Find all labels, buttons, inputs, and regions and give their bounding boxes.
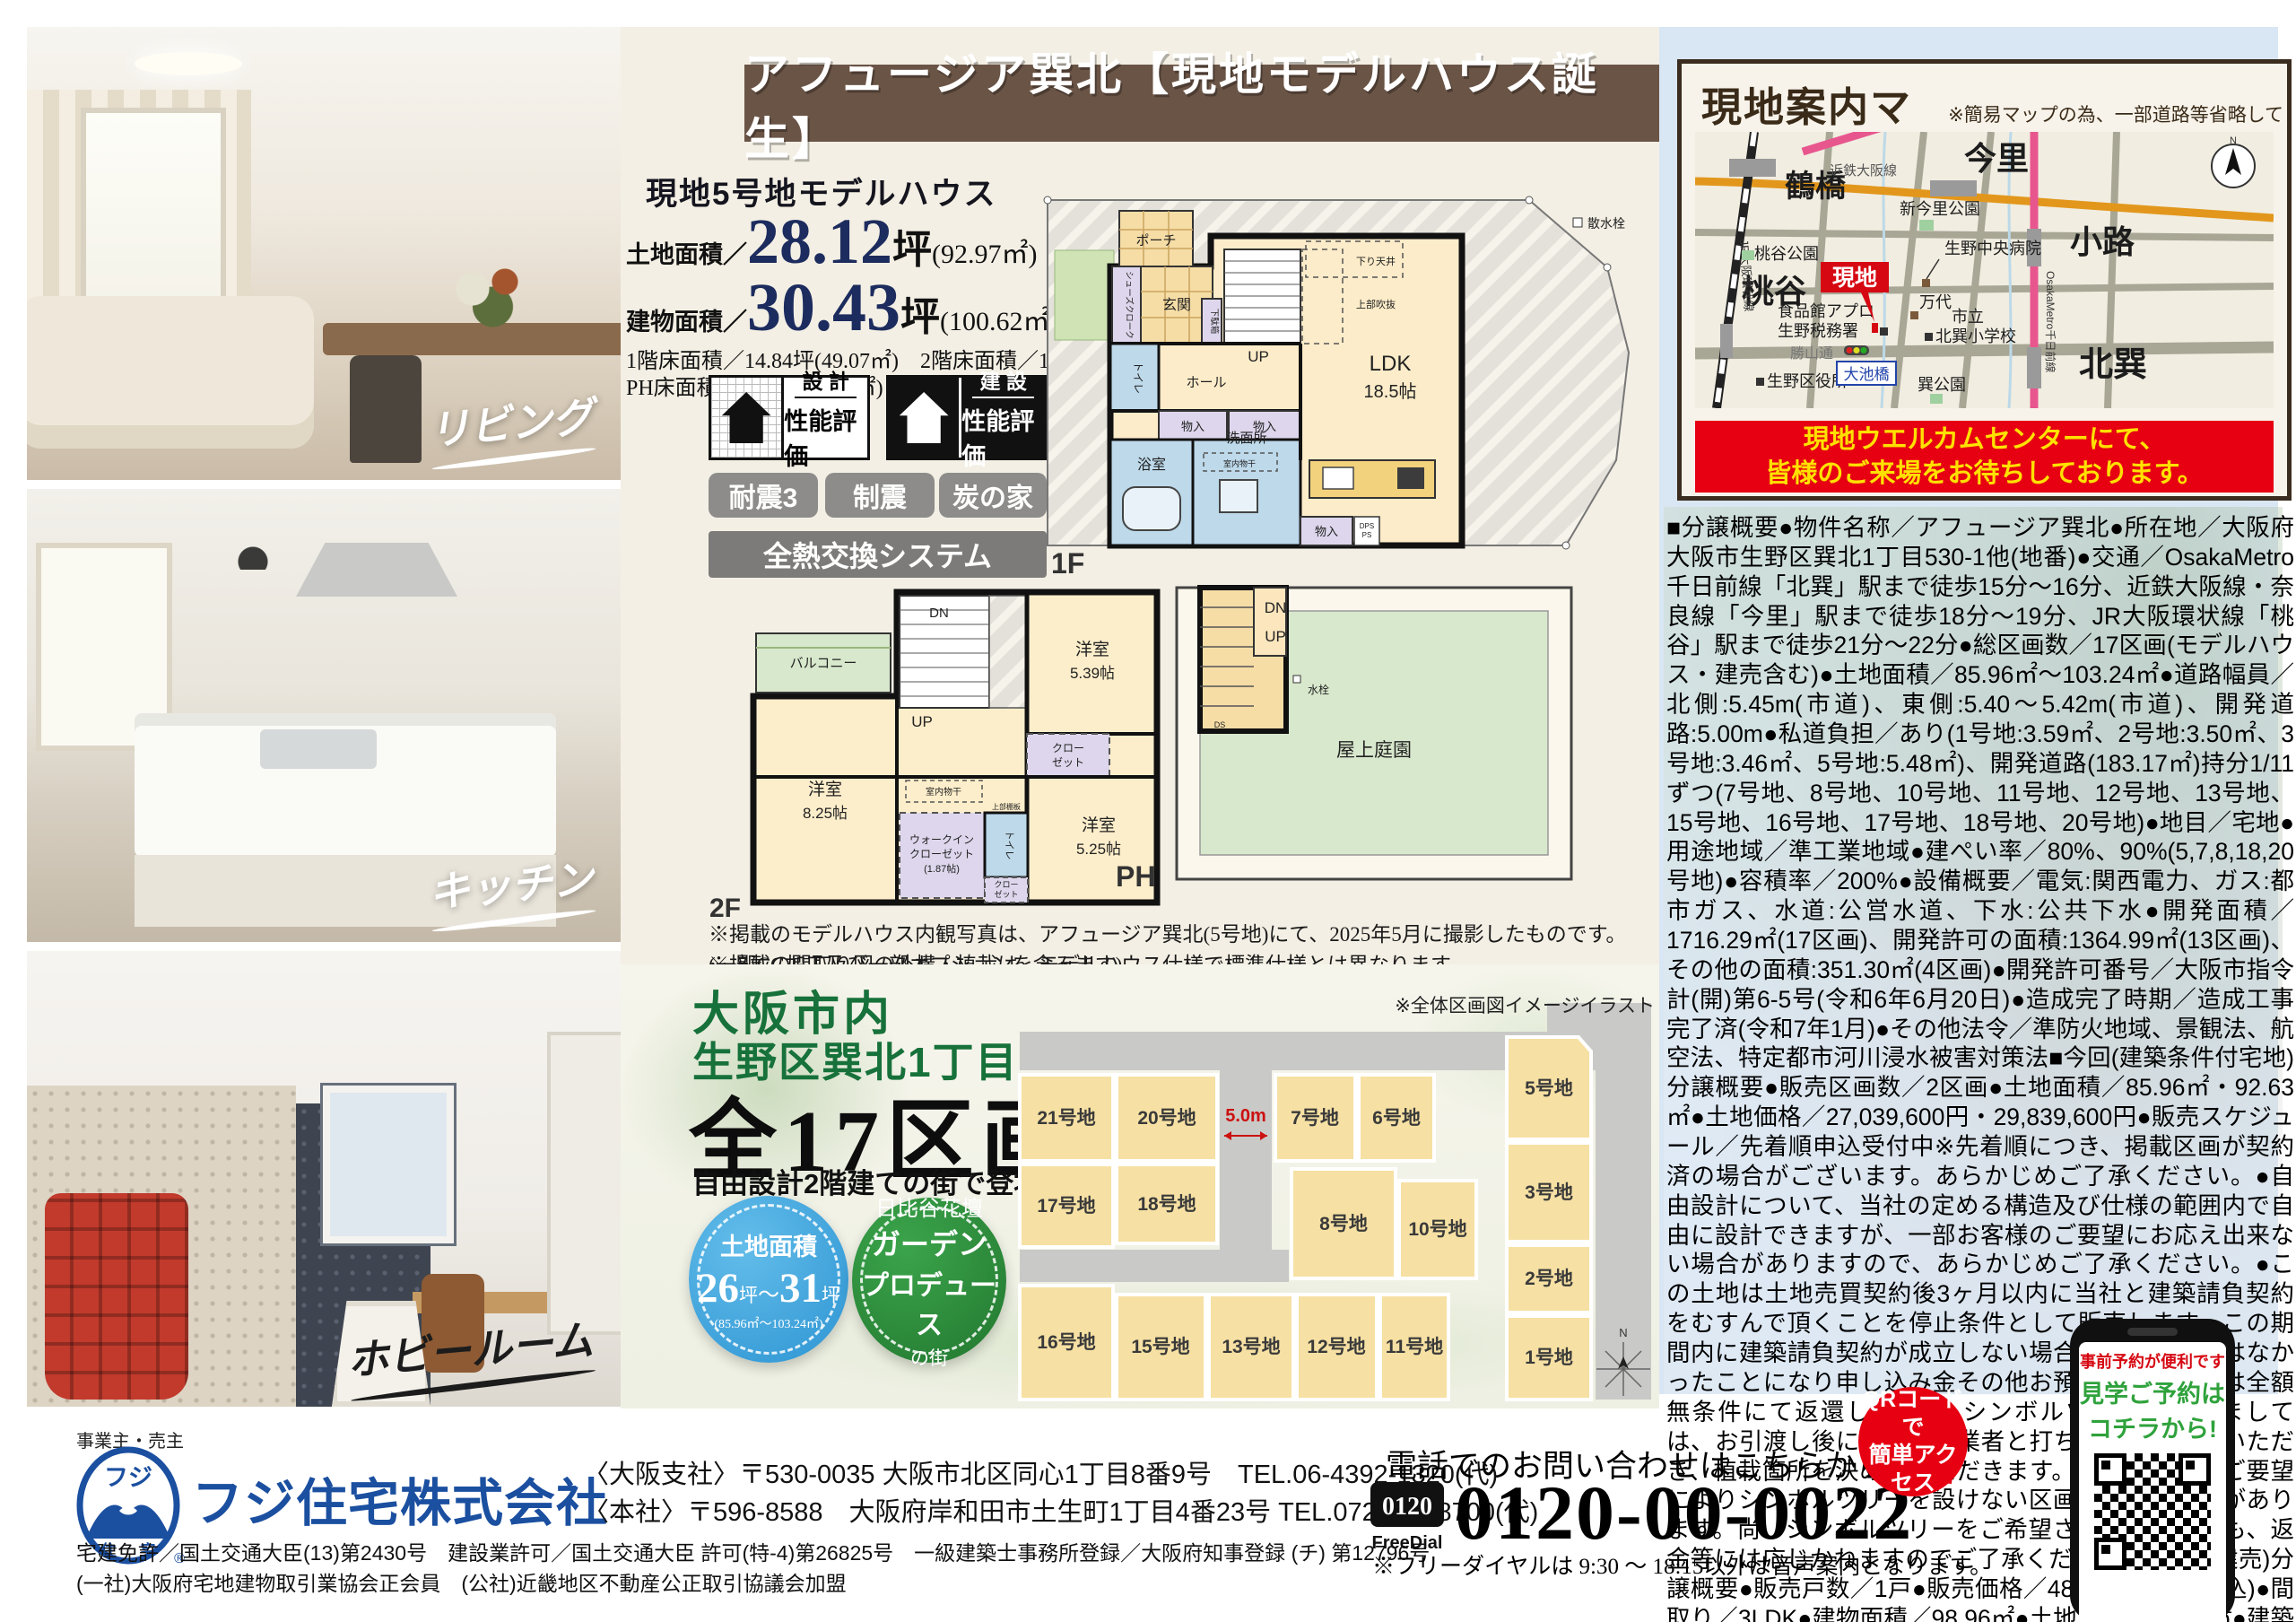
design-performance-badge: 設 計性能評価 — [709, 375, 870, 460]
svg-text:物入: 物入 — [1181, 420, 1205, 433]
svg-text:11号地: 11号地 — [1386, 1336, 1443, 1357]
svg-text:PH: PH — [1116, 860, 1155, 893]
svg-text:ホール: ホール — [1186, 375, 1226, 390]
svg-text:クロー: クロー — [994, 880, 1018, 889]
building-area-row: 建物面積／ 30.43 坪 (100.62㎡) — [626, 269, 1058, 347]
sofa — [27, 296, 314, 449]
svg-text:UP: UP — [1265, 628, 1286, 645]
flyer-page: リビング キッチン ホビールーム アフュージア巽北【現地モデルハウス誕生】 現地… — [0, 0, 2296, 1622]
land-value: 28.12 — [747, 205, 892, 279]
svg-text:北巽: 北巽 — [2079, 346, 2147, 384]
phone-reserve-line2: コチラから! — [2079, 1409, 2226, 1444]
oikebashi-marker: 大池橋 — [1837, 362, 1896, 385]
svg-text:洋室: 洋室 — [1082, 815, 1116, 835]
qr-finder-tl — [2094, 1453, 2126, 1486]
svg-text:1号地: 1号地 — [1525, 1347, 1573, 1368]
land-area-row: 土地面積／ 28.12 坪 (92.97㎡) — [626, 205, 1037, 279]
license-line-1: 宅建免許／国土交通大臣(13)第2430号 建設業許可／国土交通大臣 許可(特-… — [76, 1536, 1430, 1566]
kitchen-caption: キッチン — [426, 846, 596, 931]
svg-text:トイレ: トイレ — [1132, 362, 1144, 394]
house-icon — [900, 392, 949, 443]
building-label: 建物面積／ — [626, 302, 747, 337]
svg-text:万代: 万代 — [1919, 293, 1952, 311]
svg-text:トイレ: トイレ — [1004, 831, 1014, 860]
qr-finder-bl — [2094, 1538, 2126, 1570]
svg-text:0120: 0120 — [1382, 1493, 1432, 1521]
floorplan-1f: ポーチ 玄関 シューズクローク 下駄箱 UP 上部吹抜 下り天井 LDK 18.… — [1040, 164, 1664, 579]
svg-text:フジ: フジ — [104, 1464, 152, 1491]
design-badge-icon — [711, 378, 784, 458]
living-photo: リビング — [27, 27, 621, 480]
road-width-annotation: 5.0m — [1224, 1106, 1267, 1140]
svg-text:12号地: 12号地 — [1307, 1336, 1365, 1357]
seal-ring — [697, 1204, 840, 1355]
svg-text:PS: PS — [1362, 531, 1372, 539]
svg-text:UP: UP — [911, 713, 933, 730]
seishin-button: 制震 — [825, 473, 935, 518]
sink — [260, 729, 377, 769]
svg-text:DPS: DPS — [1360, 522, 1374, 530]
garden-produce-seal: 日比谷花壇 ガーデン プロデュース の街 — [852, 1198, 1006, 1363]
door — [547, 1032, 621, 1335]
svg-text:室内物干: 室内物干 — [926, 786, 961, 798]
ph-plan — [1177, 588, 1571, 879]
svg-text:DN: DN — [929, 606, 949, 621]
company-address-1: 〈大阪支社〉〒530-0035 大阪市北区同心1丁目8番9号 TEL.06-43… — [583, 1453, 1498, 1491]
guide-map-box: 現地案内マップ ※簡易マップの為、一部道路等省略しております。 — [1677, 59, 2292, 501]
svg-text:8号地: 8号地 — [1319, 1213, 1368, 1234]
svg-text:浴室: 浴室 — [1137, 457, 1166, 473]
svg-text:LDK: LDK — [1370, 352, 1412, 376]
guide-map: 鶴橋 今里 小路 桃谷 北巽 近鉄大阪線 JR大阪環状線 OsakaMetro千… — [1695, 132, 2274, 408]
kitchen-photo: キッチン — [27, 489, 621, 942]
svg-text:(1.87帖): (1.87帖) — [924, 863, 960, 875]
svg-text:16号地: 16号地 — [1037, 1331, 1095, 1353]
svg-text:生野中央病院: 生野中央病院 — [1944, 240, 2041, 257]
svg-text:食品館アプロ: 食品館アプロ — [1778, 302, 1874, 320]
svg-text:洋室: 洋室 — [808, 780, 842, 799]
svg-text:2号地: 2号地 — [1525, 1268, 1573, 1289]
land-unit: 坪 — [892, 217, 932, 275]
qr-access-bubble: QRコードで 簡単アクセス — [1858, 1387, 1968, 1496]
red-vest — [45, 1193, 188, 1400]
land-paren: (92.97㎡) — [932, 231, 1037, 271]
svg-text:水栓: 水栓 — [1308, 683, 1329, 696]
svg-text:13号地: 13号地 — [1222, 1336, 1280, 1357]
traffic-signal-icon — [1844, 345, 1869, 355]
svg-text:新今里公園: 新今里公園 — [1900, 200, 1980, 218]
svg-text:玄関: 玄関 — [1162, 297, 1191, 313]
svg-text:クローゼット: クローゼット — [909, 848, 974, 860]
phone-pre-text: 事前予約が便利です — [2079, 1349, 2226, 1373]
design-badge-bottom: 性能評価 — [784, 402, 867, 472]
svg-text:OsakaMetro千日前線: OsakaMetro千日前線 — [2044, 271, 2057, 372]
flowers — [448, 260, 529, 332]
welcome-line1: 現地ウエルカムセンターにて、 — [1695, 423, 2274, 457]
svg-text:ウォークイン: ウォークイン — [909, 833, 974, 846]
hobby-photo: ホビールーム — [27, 951, 621, 1407]
construction-performance-badge: 建 設性能評価 — [886, 375, 1048, 460]
svg-text:勝山通: 勝山通 — [1790, 345, 1833, 362]
svg-text:近鉄大阪線: 近鉄大阪線 — [1830, 163, 1897, 179]
svg-text:18号地: 18号地 — [1137, 1193, 1196, 1215]
svg-text:巽公園: 巽公園 — [1918, 376, 1966, 394]
svg-text:DS: DS — [1214, 720, 1226, 729]
svg-text:5.0m: 5.0m — [1225, 1106, 1266, 1126]
qr-code — [2091, 1450, 2214, 1574]
kitchen-caption-text: キッチン — [427, 855, 596, 916]
title-banner: アフュージア巽北【現地モデルハウス誕生】 — [744, 65, 1659, 142]
svg-text:室内物干: 室内物干 — [1223, 458, 1256, 468]
living-caption: リビング — [426, 384, 596, 469]
freedial-note: ※フリーダイヤルは 9:30 〜 18:15以外は音声案内となります。 — [1372, 1548, 1992, 1581]
svg-text:17号地: 17号地 — [1037, 1195, 1095, 1216]
svg-text:桃谷公園: 桃谷公園 — [1754, 245, 1819, 263]
freedial-icon: 0120 FreeDial — [1370, 1482, 1448, 1554]
svg-text:5号地: 5号地 — [1525, 1077, 1573, 1099]
svg-text:生野税務署: 生野税務署 — [1778, 322, 1858, 340]
svg-text:上部棚板: 上部棚板 — [992, 802, 1021, 811]
svg-text:UP: UP — [1248, 348, 1269, 365]
heat-exchange-bar: 全熱交換システム — [709, 531, 1047, 578]
svg-text:ゼット: ゼット — [994, 889, 1018, 899]
svg-text:18.5帖: 18.5帖 — [1364, 381, 1417, 402]
svg-text:15号地: 15号地 — [1131, 1336, 1189, 1357]
chair — [350, 355, 422, 463]
svg-text:市立: 市立 — [1952, 308, 1984, 326]
lot-parcels — [1020, 1037, 1591, 1400]
qr-bubble-line1: QRコードで — [1863, 1387, 1964, 1440]
construction-badge-top: 建 設 — [972, 364, 1033, 398]
phone-speaker — [2127, 1328, 2178, 1336]
land-label: 土地面積／ — [626, 235, 747, 270]
svg-text:生野区役所: 生野区役所 — [1767, 372, 1848, 390]
lot-map-note: ※全体区画図イメージイラスト — [1395, 996, 1655, 1016]
company-name: フジ住宅株式会社 — [192, 1462, 608, 1536]
license-line-2: (一社)大阪府宅地建物取引業協会正会員 (公社)近畿地区不動産公正取引協議会加盟 — [76, 1566, 847, 1597]
house-icon — [722, 392, 771, 443]
area-tagline: 自由設計2階建ての街で登場! — [692, 1161, 1051, 1201]
svg-text:5.39帖: 5.39帖 — [1070, 665, 1115, 682]
svg-text:物入: 物入 — [1315, 525, 1338, 538]
svg-text:今里: 今里 — [1964, 140, 2029, 177]
svg-text:7号地: 7号地 — [1291, 1107, 1339, 1129]
window — [323, 1086, 454, 1243]
svg-text:6号地: 6号地 — [1372, 1107, 1421, 1129]
ceiling-light — [135, 52, 242, 75]
svg-text:洗面所: 洗面所 — [1226, 431, 1266, 446]
qr-finder-tr — [2179, 1453, 2211, 1486]
building-unit: 坪 — [900, 284, 940, 342]
land-area-seal: 土地面積 26 坪 〜 31 坪 (85.96㎡〜103.24㎡) — [689, 1196, 848, 1363]
lot-map: 21号地 20号地 7号地 6号地 5号地 17号地 18号地 8号地 10号地… — [1011, 985, 1659, 1405]
svg-text:1F: 1F — [1051, 547, 1084, 579]
building-value: 30.43 — [747, 269, 900, 347]
svg-text:21号地: 21号地 — [1037, 1107, 1095, 1129]
svg-text:小路: 小路 — [2070, 223, 2135, 260]
welcome-banner: 現地ウエルカムセンターにて、 皆様のご来場をお待ちしております。 — [1695, 421, 2274, 493]
house-1f — [1110, 211, 1462, 545]
svg-text:ゼット: ゼット — [1052, 756, 1084, 769]
svg-text:クロー: クロー — [1052, 742, 1084, 754]
design-badge-top: 設 計 — [795, 364, 856, 398]
svg-text:20号地: 20号地 — [1137, 1107, 1196, 1129]
phone-screen: 事前予約が便利です 見学ご予約は コチラから! — [2079, 1342, 2226, 1622]
freedial-number: 0120-00-0022 — [1455, 1468, 1913, 1557]
svg-text:下り天井: 下り天井 — [1356, 255, 1396, 267]
floorplan-ph: DN UP DS 水栓 屋上庭園 PH — [1112, 577, 1583, 893]
svg-text:散水栓: 散水栓 — [1587, 216, 1625, 231]
svg-text:3号地: 3号地 — [1525, 1182, 1573, 1203]
svg-text:下駄箱: 下駄箱 — [1209, 309, 1220, 335]
svg-text:上部吹抜: 上部吹抜 — [1356, 298, 1396, 310]
svg-text:バルコニー: バルコニー — [790, 656, 857, 671]
svg-text:屋上庭園: 屋上庭園 — [1336, 740, 1412, 761]
svg-text:洋室: 洋室 — [1075, 640, 1109, 659]
svg-text:北巽小学校: 北巽小学校 — [1935, 327, 2016, 345]
suminoie-button: 炭の家 — [939, 473, 1047, 518]
smartphone-mockup: 事前予約が便利です 見学ご予約は コチラから! — [2070, 1319, 2235, 1622]
svg-text:N: N — [2230, 135, 2237, 146]
taishin-button: 耐震3 — [709, 473, 818, 518]
living-caption-text: リビング — [427, 393, 596, 454]
svg-text:ポーチ: ポーチ — [1135, 233, 1176, 249]
svg-text:N: N — [1619, 1326, 1627, 1339]
phone-reserve-line1: 見学ご予約は — [2079, 1374, 2226, 1409]
svg-text:8.25帖: 8.25帖 — [803, 805, 848, 822]
svg-text:10号地: 10号地 — [1408, 1218, 1466, 1240]
construction-badge-icon — [889, 378, 961, 458]
title-banner-text: アフュージア巽北【現地モデルハウス誕生】 — [744, 39, 1659, 168]
svg-text:大池橋: 大池橋 — [1844, 366, 1890, 383]
svg-text:DN: DN — [1265, 599, 1287, 616]
floorplan-2f: バルコニー DN UP 洋室 5.39帖 クロー ゼット 室内物干 洋室 8.2… — [704, 581, 1170, 920]
construction-badge-bottom: 性能評価 — [961, 402, 1045, 472]
seal-ring — [860, 1206, 998, 1355]
welcome-line2: 皆様のご来場をお待ちしております。 — [1695, 457, 2274, 491]
svg-text:現地: 現地 — [1832, 266, 1877, 291]
svg-text:シューズクローク: シューズクローク — [1124, 271, 1135, 339]
